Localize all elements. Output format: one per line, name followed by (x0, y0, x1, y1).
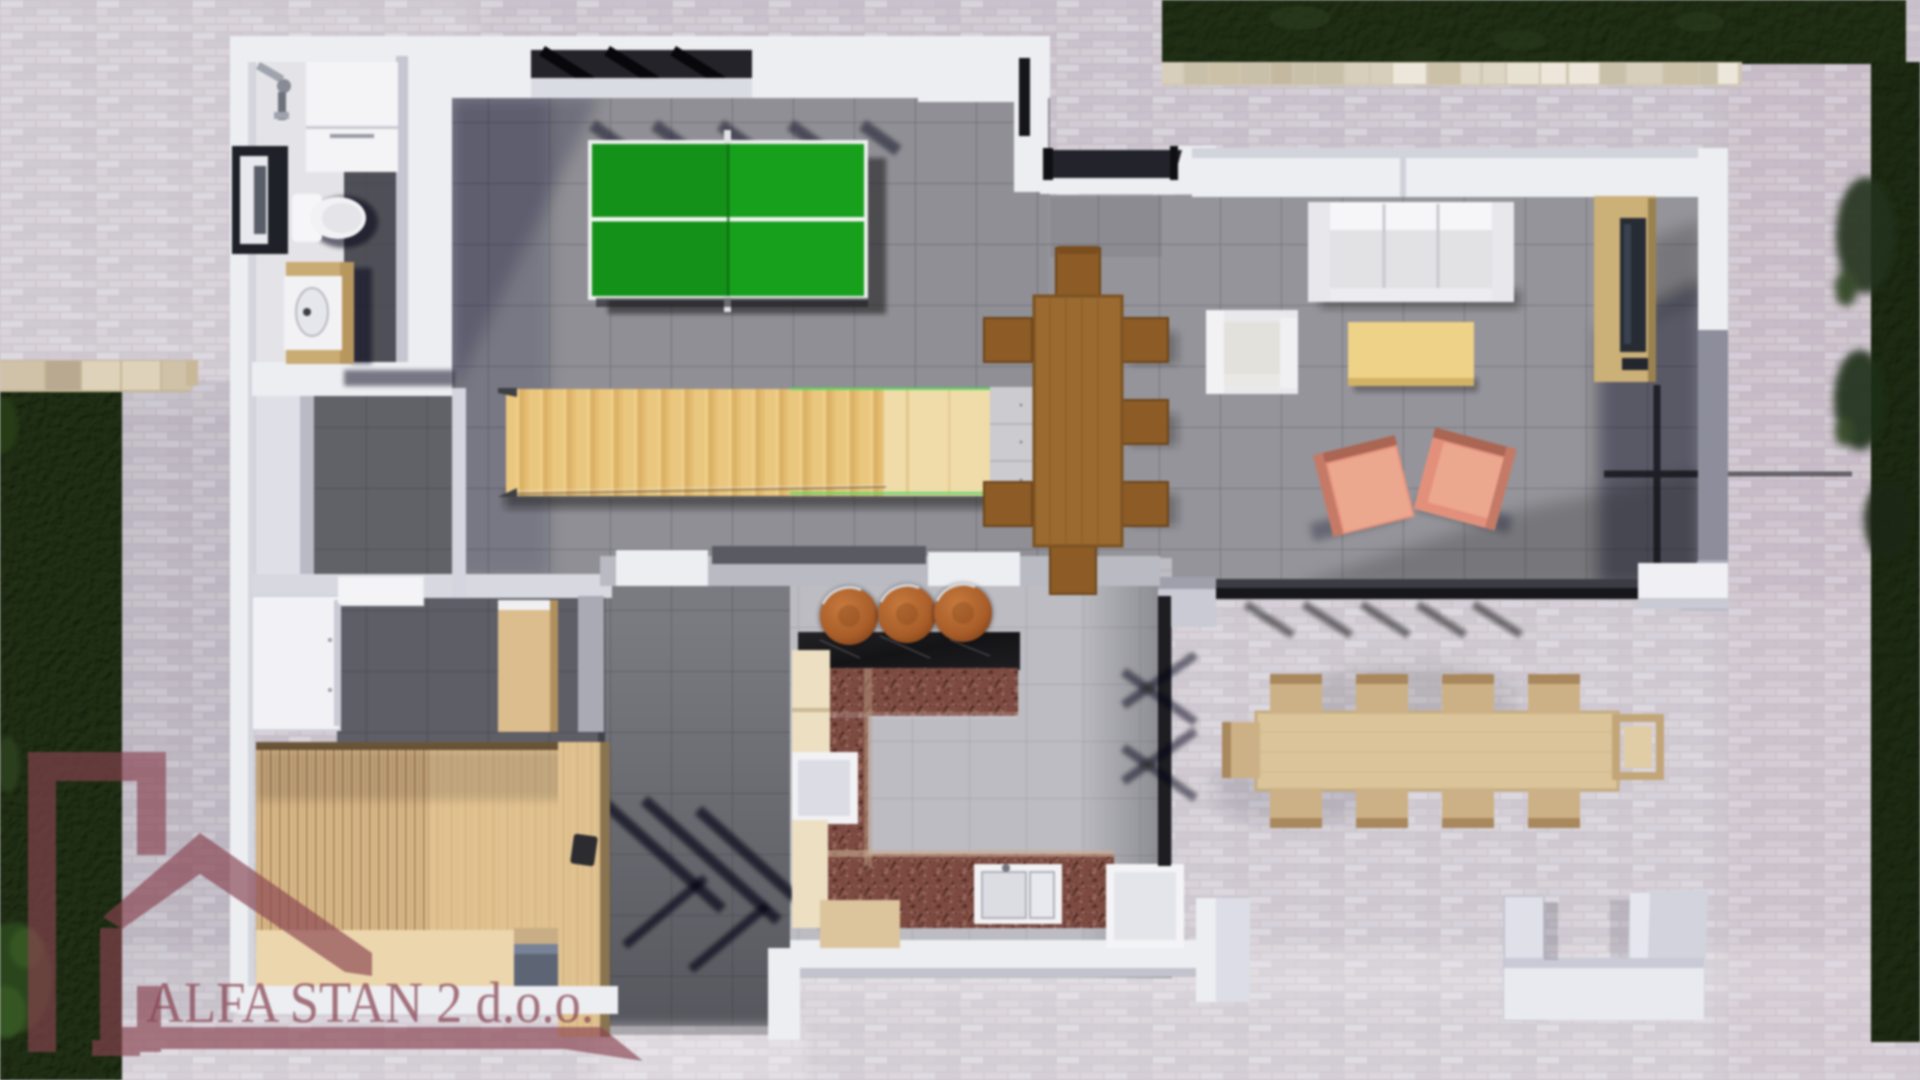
svg-text:ALFA STAN 2 d.o.o.: ALFA STAN 2 d.o.o. (146, 970, 594, 1035)
